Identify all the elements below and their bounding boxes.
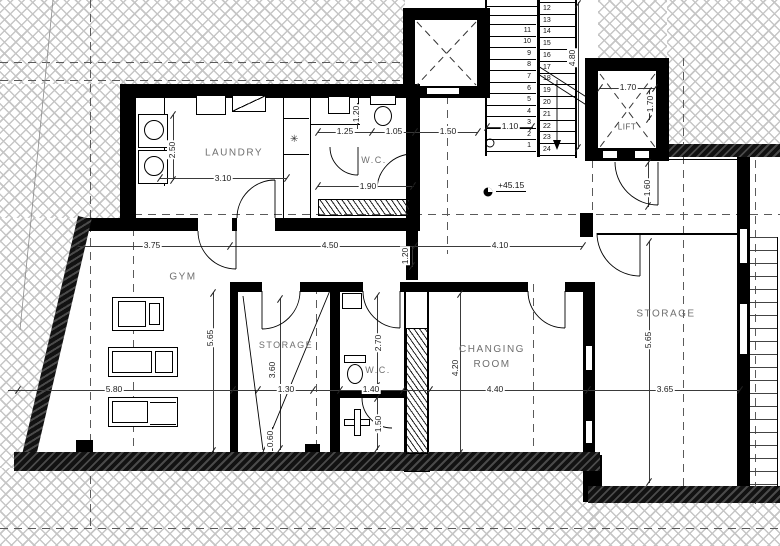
dim-laundry-width: 3.10	[214, 173, 233, 183]
dim-lift-width: 1.70	[619, 82, 638, 92]
dim-wc-upper-a: 1.25	[336, 126, 355, 136]
dimension-line	[649, 241, 650, 483]
gym-equipment-detail	[150, 402, 176, 403]
lift-wall	[585, 148, 669, 161]
wall	[230, 282, 238, 457]
window	[739, 303, 748, 355]
stair-step: 8	[487, 60, 536, 72]
grid-line	[447, 96, 448, 254]
room-label-wc-lower: W.C.	[365, 365, 391, 375]
gym-equipment-detail	[149, 303, 160, 325]
toilet-bowl	[374, 106, 392, 126]
dim-wc-lower-width: 1.40	[362, 384, 381, 394]
ground-hatch	[0, 84, 120, 218]
wall	[330, 288, 340, 457]
grid-line	[683, 58, 684, 498]
bottom-wall	[588, 486, 780, 503]
stair-step: 19	[540, 85, 575, 97]
stair-landing-line	[487, 6, 537, 7]
wall	[78, 218, 198, 231]
dim-row-d: 4.10	[491, 240, 510, 250]
sink	[328, 96, 350, 114]
beam	[669, 144, 780, 157]
partition	[310, 124, 360, 125]
washing-machine-drum	[144, 120, 164, 140]
gym-equipment-detail	[150, 424, 176, 425]
stair-step: 23	[540, 132, 575, 144]
stair-landing-line	[487, 15, 537, 16]
stair-step: 7	[487, 71, 536, 83]
toilet-tank	[370, 95, 396, 105]
dim-storage-right-height: 5.65	[643, 331, 653, 350]
dimension-line	[280, 298, 281, 450]
room-label-wc-upper: W.C.	[361, 155, 387, 165]
dim-row-c: 1.20	[400, 247, 410, 266]
dim-laundry-height: 2.50	[167, 141, 177, 160]
stair-step: 9	[487, 48, 536, 60]
toilet-bowl	[347, 364, 363, 384]
room-label-storage-middle: STORAGE	[259, 340, 313, 350]
door-jamb	[585, 420, 593, 444]
dim-lift-door: 1.60	[642, 179, 652, 198]
line	[597, 233, 737, 235]
ground-hatch	[598, 0, 667, 58]
dimension-line	[460, 293, 461, 454]
stair-step: 21	[540, 109, 575, 121]
dim-stairs-width: 1.10	[501, 121, 520, 131]
washing-machine-drum	[144, 156, 164, 176]
dim-lift-depth: 1.70	[645, 95, 655, 114]
lift-wall	[656, 58, 669, 161]
floor-plan: ✳ 1110987654321 121314151617181920212223…	[0, 0, 780, 546]
grid-line	[120, 214, 780, 215]
dim-changing-height: 4.20	[450, 359, 460, 378]
wall	[232, 218, 237, 231]
stair-flight-left: 1110987654321	[487, 24, 536, 152]
room-label-storage-right: STORAGE	[636, 309, 695, 320]
ground-hatch	[0, 0, 405, 84]
grid-line	[316, 286, 317, 458]
wall	[580, 213, 593, 237]
dimension-line	[213, 292, 214, 452]
dim-storage-mid-height: 3.60	[267, 361, 277, 380]
dim-row-b: 4.50	[321, 240, 340, 250]
stair-step: 11	[487, 25, 536, 37]
dim-changing-width: 4.40	[486, 384, 505, 394]
vent-grate	[406, 328, 428, 454]
stair-flight-right: 12131415161718192021222324	[540, 2, 575, 156]
gym-equipment-detail	[118, 301, 146, 327]
basin	[354, 409, 361, 436]
grid-line	[0, 80, 406, 81]
stair-step: 24	[540, 144, 575, 156]
dim-gym-height: 5.65	[205, 329, 215, 348]
lift-wall	[585, 58, 598, 161]
stair-step: 18	[540, 74, 575, 86]
wall	[275, 218, 420, 231]
toilet-tank	[344, 355, 366, 363]
stair-step: 20	[540, 97, 575, 109]
window	[739, 228, 748, 264]
gym-equipment-detail	[112, 401, 148, 423]
lift-door-jamb	[634, 150, 650, 159]
line	[669, 159, 737, 160]
room-label-changing-room: CHANGING ROOM	[459, 342, 525, 372]
vent-grate	[318, 199, 410, 216]
stair-step: 22	[540, 121, 575, 133]
stair-step: 4	[487, 106, 536, 118]
grid-line	[0, 528, 780, 529]
closet-shelf	[283, 154, 309, 155]
dim-wc-upper-d: 1.50	[439, 126, 458, 136]
dim-wc-upper-c: 1.05	[385, 126, 404, 136]
dim-wc-lower-height: 2.70	[373, 334, 383, 353]
stair-step: 6	[487, 83, 536, 95]
wall	[120, 84, 136, 231]
sink	[196, 95, 226, 115]
dimension-line	[578, 2, 579, 149]
dim-stairs-height: 4.80	[567, 49, 577, 68]
wall	[400, 282, 528, 292]
dim-gym-width: 5.80	[105, 384, 124, 394]
dim-storage-right-width: 3.65	[656, 384, 675, 394]
gym-equipment-detail	[112, 351, 152, 373]
bottom-wall	[14, 452, 600, 471]
shaft-door-sill	[426, 87, 460, 95]
dim-wc-lower-b: 1.50	[373, 415, 383, 434]
room-label-laundry: LAUNDRY	[205, 148, 263, 159]
stair-wall	[575, 0, 577, 158]
level-marker: +45.15	[496, 180, 526, 192]
closet-shelf	[283, 118, 309, 119]
grid-line	[0, 62, 406, 63]
lift-door-jamb	[602, 150, 618, 159]
closet-wall	[283, 96, 284, 218]
grid-line	[533, 284, 534, 458]
room-label-lift: LIFT	[618, 123, 636, 132]
appliance	[232, 95, 266, 112]
stair-step: 5	[487, 94, 536, 106]
external-stairs	[750, 237, 778, 487]
door-jamb	[585, 345, 593, 371]
partition	[310, 96, 311, 220]
stair-step: 14	[540, 27, 575, 39]
sink	[342, 293, 362, 309]
line	[777, 237, 778, 487]
shaft-wall	[403, 8, 415, 98]
dim-row-a: 3.75	[143, 240, 162, 250]
fixture-symbol-icon: ✳	[290, 134, 298, 145]
ground-hatch	[588, 501, 780, 546]
stair-step: 1	[487, 140, 536, 152]
dim-storage-mid-width: 1.30	[277, 384, 296, 394]
dim-wc-upper-b: 1.20	[351, 105, 361, 124]
stair-step: 13	[540, 15, 575, 27]
room-label-gym: GYM	[169, 272, 196, 283]
dim-wc-upper-e: 1.90	[359, 181, 378, 191]
changing-room-line2: ROOM	[459, 357, 525, 372]
dim-storage-mid-b: 0.60	[265, 430, 275, 449]
stair-step: 12	[540, 3, 575, 15]
stair-step: 10	[487, 37, 536, 49]
changing-room-line1: CHANGING	[459, 342, 525, 357]
gym-equipment-detail	[155, 351, 173, 373]
